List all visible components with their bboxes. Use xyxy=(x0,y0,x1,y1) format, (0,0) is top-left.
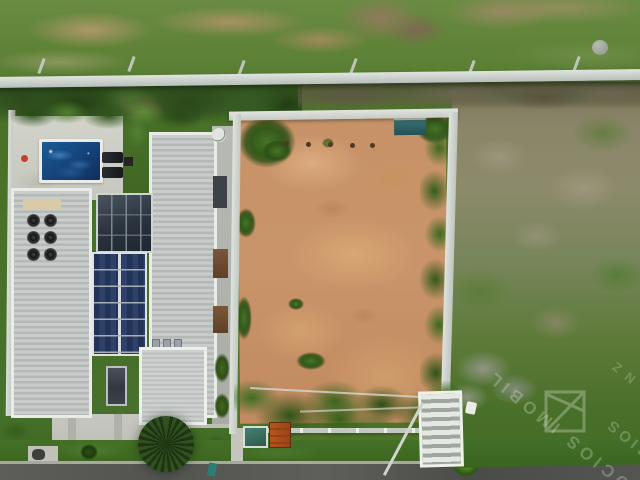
aerial-photo: GOCIOS IMOBIL GOCIOS NZ xyxy=(0,0,640,480)
small-shrub xyxy=(80,444,98,460)
teal-shed xyxy=(243,426,268,448)
solar-water-heater-disc xyxy=(27,248,40,261)
rust-patch xyxy=(213,249,228,278)
rust-patch xyxy=(213,306,228,333)
glass-atrium-roof xyxy=(96,193,153,253)
patio-table xyxy=(124,157,133,166)
solar-water-heater-disc xyxy=(27,214,40,227)
round-bush xyxy=(592,40,608,55)
field-grass-edge xyxy=(452,438,640,468)
planting-stake xyxy=(350,143,355,148)
swimming-pool xyxy=(42,142,100,180)
ac-equipment xyxy=(213,176,227,208)
roof-lower-extension xyxy=(139,347,207,425)
skylight xyxy=(106,366,127,406)
white-gate-structure xyxy=(418,390,464,467)
red-object xyxy=(21,155,28,162)
planting-stake xyxy=(328,142,333,147)
planting-stake xyxy=(370,143,375,148)
weed-patch xyxy=(288,298,304,310)
orange-crate xyxy=(269,422,291,448)
solar-panel-array xyxy=(92,252,147,356)
sun-lounger xyxy=(102,152,123,163)
weed-patch xyxy=(296,352,326,370)
solar-water-heater-disc xyxy=(44,214,57,227)
brush-band xyxy=(298,82,640,110)
manhole-cover xyxy=(32,449,45,460)
roof-beige-strip xyxy=(23,199,61,209)
palm-tree xyxy=(138,416,194,472)
teal-tank xyxy=(394,118,426,136)
passage-weeds xyxy=(214,393,230,419)
solar-water-heater-disc xyxy=(44,248,57,261)
solar-water-heater-disc xyxy=(44,231,57,244)
garden-shrubs xyxy=(10,96,200,132)
sun-lounger xyxy=(102,167,123,178)
solar-water-heater-disc xyxy=(27,231,40,244)
watermark-logo-icon xyxy=(543,384,587,434)
planting-stake xyxy=(306,142,311,147)
planting-stake xyxy=(284,141,289,146)
passage-weeds xyxy=(214,353,230,383)
dry-grass-patch xyxy=(452,344,556,426)
satellite-dish xyxy=(212,128,226,142)
